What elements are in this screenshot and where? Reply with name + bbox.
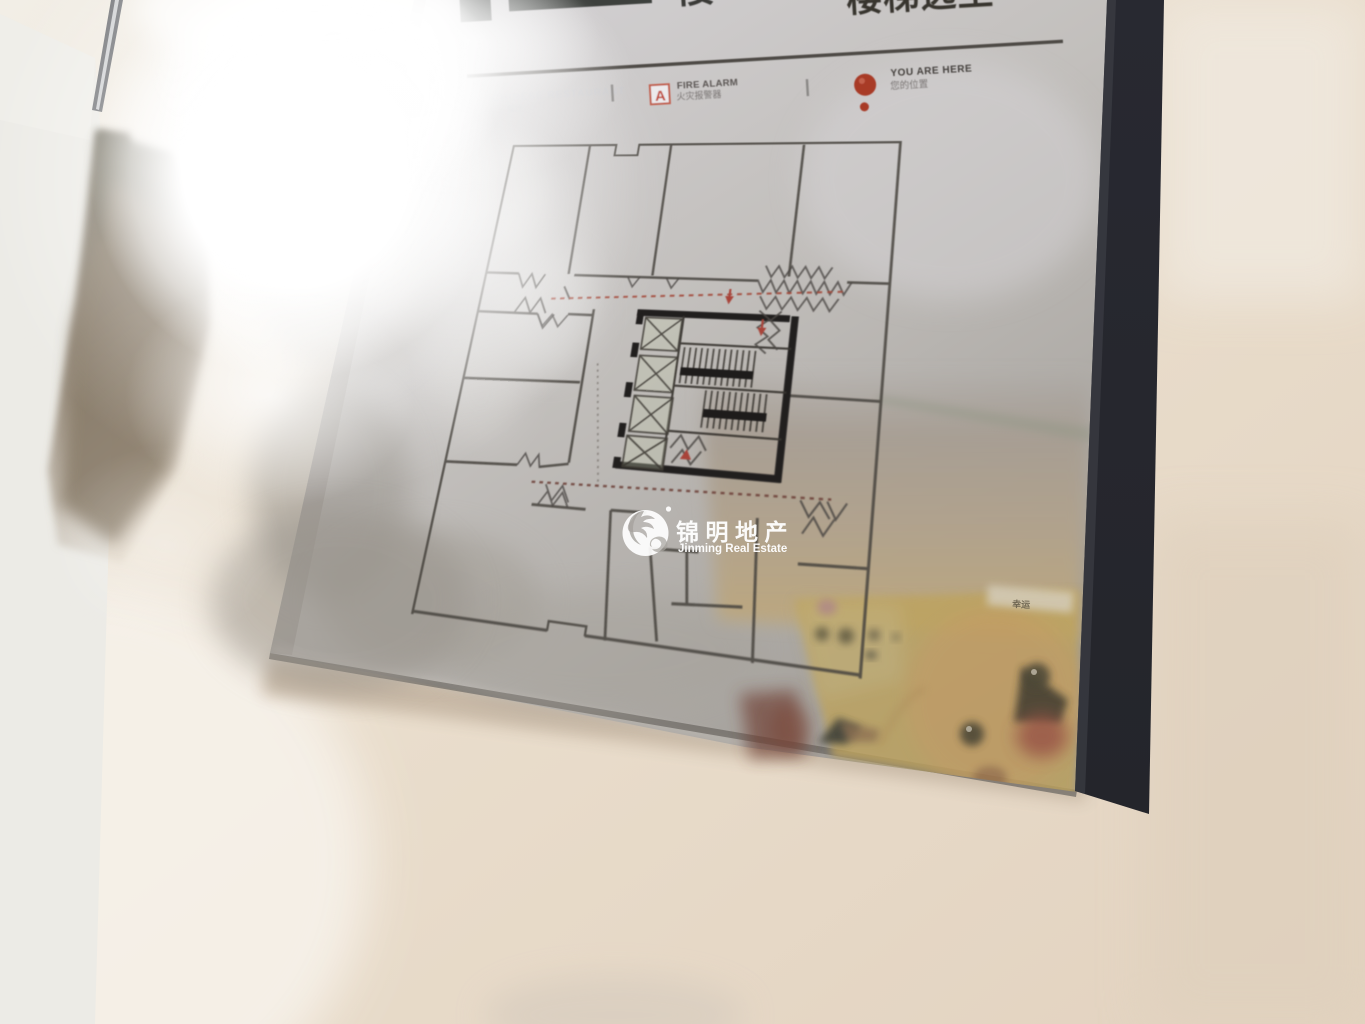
svg-text:锦明地产: 锦明地产 (676, 519, 794, 545)
svg-text:Jinming Real Estate: Jinming Real Estate (678, 543, 787, 555)
